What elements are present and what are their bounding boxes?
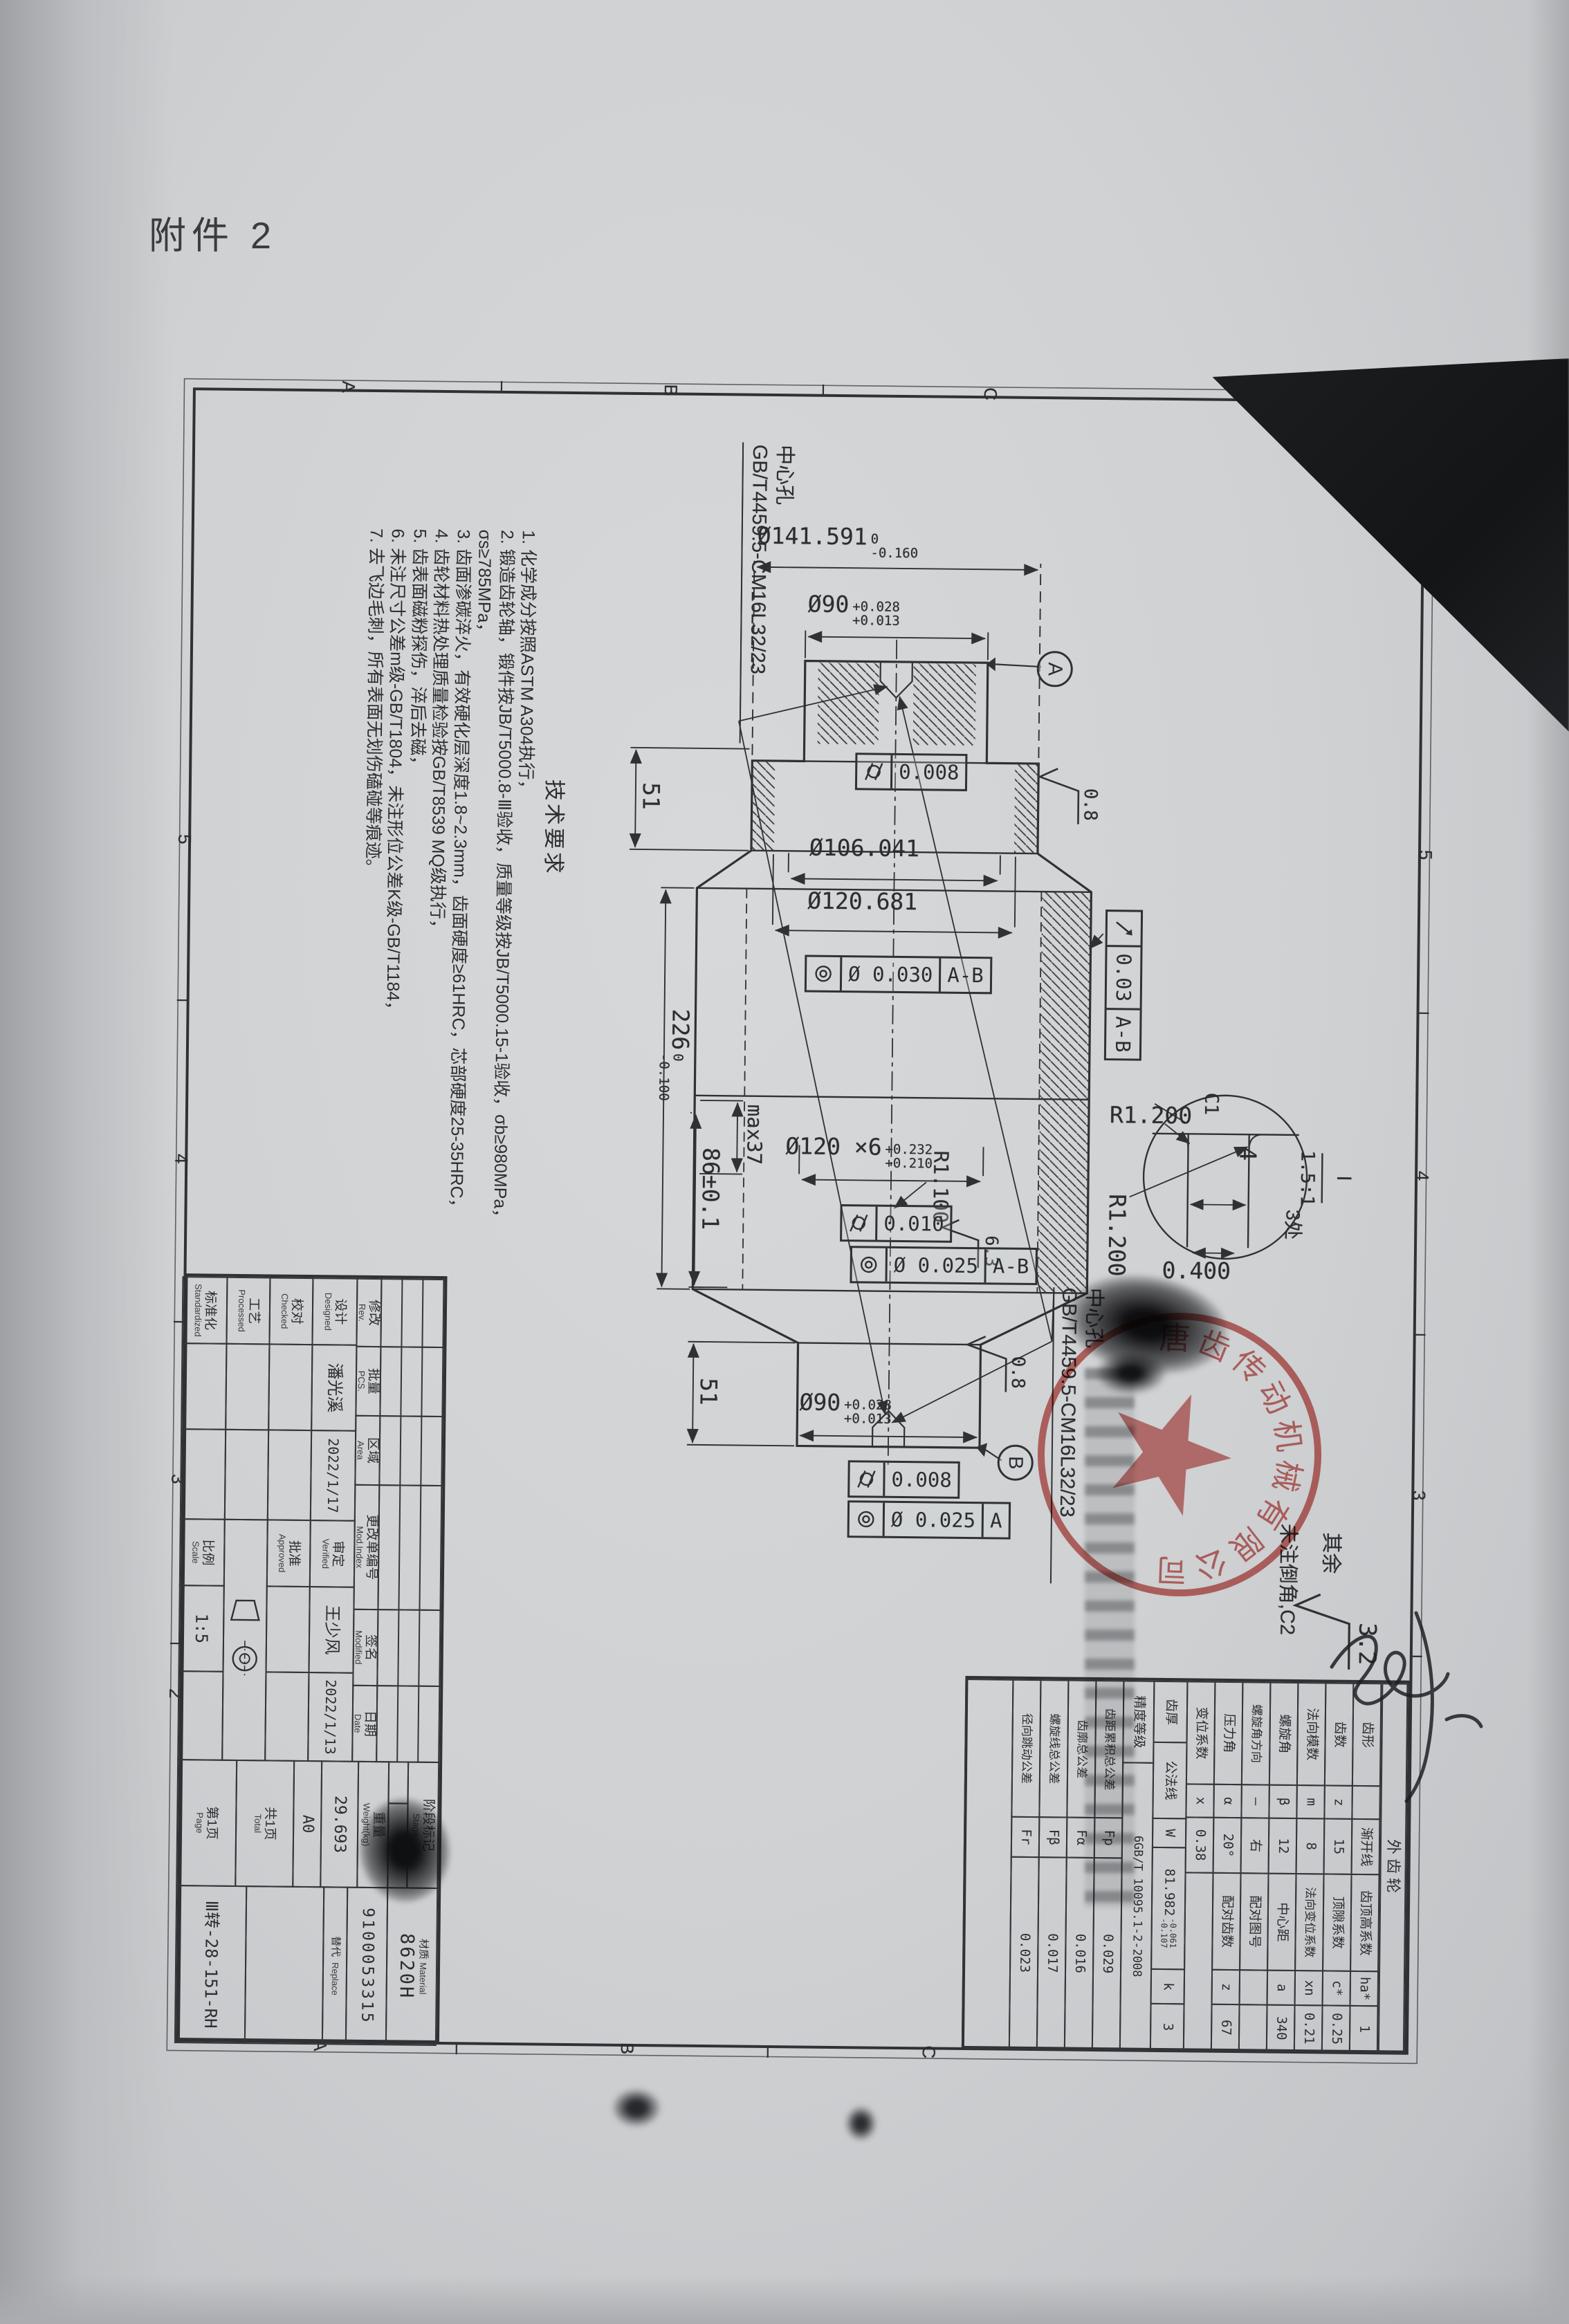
dim-groove: 4	[1234, 1147, 1261, 1161]
dia-sign: Ø	[894, 1253, 906, 1277]
fcf-value: 0.008	[885, 1463, 958, 1497]
gt-cell: xn	[1294, 1970, 1324, 2006]
rev-header: 区域Area	[354, 1415, 380, 1486]
rev-empty	[376, 1609, 441, 1687]
runout-icon	[1108, 912, 1141, 947]
cn: 比例	[200, 1539, 215, 1565]
detail-scale: 1.5:1	[1296, 1150, 1319, 1207]
handwritten-signature	[1311, 1584, 1525, 1812]
dim-radius-1: R1.200	[1110, 1101, 1200, 1129]
en: Modified	[353, 1630, 363, 1664]
gt-cell: 0.21	[1294, 2004, 1323, 2052]
concentricity-icon	[850, 1502, 885, 1536]
cn: 签名	[363, 1634, 378, 1661]
drawing-number: Ⅲ转-28-151-RH	[174, 1885, 247, 2044]
gt-k-value: 3	[1150, 2003, 1185, 2051]
fcf-concentricity-spline: Ø 0.025 A-B	[850, 1246, 1037, 1285]
en: Processed	[236, 1289, 246, 1332]
dim-value: Ø141.591	[758, 522, 868, 551]
staff-name-empty	[265, 1585, 310, 1673]
fcf-concentricity-mid: Ø 0.030 A-B	[805, 954, 992, 994]
fcf-cylindricity-spline: 0.010	[840, 1204, 953, 1243]
tol-lower: -0.160	[870, 546, 918, 560]
toner-mark	[845, 2106, 877, 2141]
title-block: 修改Rev. 批量PCS. 区域Area 更改单编号Mod.Index 签名Mo…	[177, 1273, 448, 2043]
fcf-datum-ref: A-B	[1106, 1010, 1140, 1059]
fcf-value: 0.03	[1107, 947, 1141, 1010]
gt-cell: x	[1185, 1783, 1215, 1818]
center-hole-line2: GB/T4459.5-CM16L32/23	[745, 445, 772, 674]
pages-total: 共1页Total	[235, 1760, 295, 1888]
note-line: 2. 锻造齿轮轴，锻件按JB/T5000.8-Ⅲ验收，质量等级按JB/T5000…	[466, 529, 517, 1284]
en: Page	[194, 1812, 205, 1834]
dim-pin-od: Ø120.681	[807, 887, 980, 916]
fcf-value: 0.010	[877, 1207, 951, 1241]
gt-tol-sym: Fβ	[1038, 1816, 1068, 1858]
tol-upper: -0.061	[1168, 1918, 1177, 1948]
staff-date: 2022/1/13	[307, 1672, 354, 1762]
gt-tol-value: 0.023	[1009, 1856, 1040, 2049]
staff-date-empty	[264, 1671, 309, 1762]
cn: 校对	[288, 1298, 304, 1325]
material-value: 8620H	[395, 1933, 416, 2000]
gt-cell: —	[1240, 1784, 1270, 1818]
staff-label: 审定Verified	[309, 1520, 356, 1588]
en: Rev.	[356, 1304, 367, 1322]
cn: 标准化	[202, 1291, 217, 1330]
gt-cell: 配对图号	[1239, 1872, 1269, 1971]
gt-cell: 法向变位系数	[1294, 1873, 1324, 1971]
first-angle-projection-icon	[227, 1588, 263, 1693]
cn: 审定	[330, 1540, 345, 1567]
scale-label: 比例Scale	[179, 1518, 226, 1587]
rev-header: 签名Modified	[352, 1609, 378, 1686]
gt-cell: 8	[1296, 1818, 1325, 1874]
scale-extra-empty	[177, 1670, 223, 1761]
dim-journal-right: Ø90+0.028+0.013	[799, 1388, 974, 1427]
dim-value: Ø90	[808, 591, 850, 618]
fcf-runout: 0.03 A-B	[1104, 910, 1143, 1061]
gt-cell: 20°	[1213, 1817, 1242, 1874]
weight-value: 29.693	[320, 1760, 359, 1888]
gt-thick-sym: W	[1152, 1818, 1186, 1849]
staff-name-empty	[181, 1343, 227, 1430]
rev-header: 更改单编号Mod.Index	[353, 1484, 380, 1610]
en: Standardized	[192, 1284, 203, 1337]
dim-depth: 0.400	[1162, 1257, 1245, 1284]
replace-cell: 替代Replace	[322, 1886, 348, 2045]
tol-lower: +0.013	[852, 614, 900, 628]
cn: 日期	[363, 1710, 378, 1737]
rev-header: 批量PCS.	[355, 1346, 381, 1417]
paper-edge-left	[0, 0, 173, 2324]
dim-end-length-right: 51	[695, 1378, 722, 1405]
en: Checked	[279, 1293, 289, 1329]
cn: 区域	[365, 1437, 380, 1464]
gt-cell: 变位系数	[1186, 1681, 1216, 1784]
concentricity-icon	[807, 957, 842, 991]
dim-value: Ø120 ×6	[785, 1132, 881, 1160]
gt-cell: β	[1268, 1784, 1298, 1819]
gt-cell: ha*	[1350, 1971, 1379, 2007]
engineering-drawing: A B C A B C 5 4 3 5 4 3 2 技术要求 1. 化学成分按照…	[166, 378, 1435, 2065]
rev-header: 修改Rev.	[356, 1278, 382, 1347]
paper-edge-right	[1527, 0, 1569, 2324]
zone-number: 5	[1415, 850, 1436, 860]
gt-cell: 67	[1211, 2004, 1240, 2051]
dim-flank-max: max37	[742, 1105, 767, 1165]
dim-chamfer-c1: C1	[1200, 1092, 1222, 1115]
rev-header: 日期Date	[351, 1685, 378, 1762]
material-label: 材质 Material	[416, 1939, 428, 1995]
gt-tol-name: 螺旋线总公差	[1038, 1679, 1069, 1818]
cn: 替代	[329, 1936, 341, 1957]
staff-name: 王少风	[308, 1586, 354, 1674]
fcf-datum-ref: A-B	[941, 959, 990, 993]
staff-date-empty	[224, 1429, 269, 1521]
gt-cell	[1238, 2004, 1268, 2051]
zone-number: 4	[1411, 1171, 1433, 1181]
gt-cell: 配对齿数	[1211, 1872, 1241, 1971]
value: 0.030	[872, 963, 933, 987]
value: 0.025	[917, 1253, 978, 1278]
staff-date-empty	[180, 1428, 226, 1520]
gt-k-label: k	[1150, 1968, 1186, 2005]
dim-root-od: Ø106.041	[809, 834, 975, 863]
en: Designed	[322, 1293, 333, 1331]
staff-label: 设计Designed	[311, 1278, 358, 1346]
fcf-value: Ø 0.025	[887, 1248, 987, 1282]
en: Scale	[190, 1541, 200, 1564]
cn: 第1页	[204, 1806, 219, 1840]
dim-journal-left: Ø90+0.028+0.013	[807, 591, 982, 629]
staff-name-empty	[225, 1343, 270, 1431]
en: Total	[253, 1814, 263, 1833]
gt-cell: 压力角	[1213, 1681, 1244, 1785]
fcf-value: Ø 0.030	[842, 957, 942, 991]
dim-value: Ø90	[799, 1388, 841, 1416]
dim-end-length-left: 51	[638, 782, 665, 810]
gt-tol-value: 0.017	[1036, 1856, 1067, 2049]
zone-number: 4	[170, 1154, 192, 1164]
cn: 更改单编号	[364, 1514, 379, 1580]
staff-label: 校对Checked	[268, 1277, 313, 1345]
material-cell: 材质 Material 8620H	[385, 1887, 438, 2046]
zone-letter: C	[918, 2045, 939, 2058]
concentricity-icon	[852, 1248, 887, 1282]
en: Date	[352, 1714, 363, 1733]
gt-thick-label: 齿厚	[1153, 1681, 1189, 1744]
datum-a: A	[1036, 651, 1073, 688]
cylindricity-icon	[857, 755, 892, 788]
gt-cell: 顶隙系数	[1322, 1873, 1352, 1971]
cn: 批准	[286, 1540, 302, 1567]
gt-cell: 1	[1349, 2005, 1379, 2053]
gt-cell: 渐开线	[1351, 1818, 1381, 1875]
paper-edge-bottom	[0, 2276, 1569, 2324]
attachment-label: 附件 2	[149, 205, 277, 259]
gt-cell: 0.25	[1321, 2004, 1351, 2052]
tol-lower: -0.100	[657, 1053, 670, 1101]
en: Verified	[320, 1539, 330, 1569]
zone-number: 3	[1408, 1491, 1429, 1501]
cn: 修改	[367, 1300, 382, 1326]
en: PCS.	[356, 1371, 366, 1392]
dia-sign: Ø	[848, 962, 861, 986]
zone-number: 5	[174, 834, 195, 845]
zone-letter: A	[338, 380, 359, 393]
roughness-0.8: 0.8	[1079, 788, 1100, 821]
rev-empty	[379, 1346, 443, 1417]
gt-cell: 螺旋角	[1269, 1682, 1299, 1786]
gt-thick-value: 81.982 -0.061-0.107	[1150, 1847, 1186, 1971]
detail-id: Ⅰ	[1332, 1154, 1356, 1203]
zone-letter: B	[660, 384, 681, 396]
en: Mod.Index	[354, 1526, 365, 1568]
pages-current: 第1页Page	[176, 1759, 237, 1887]
tol-lower: -0.107	[1159, 1918, 1168, 1948]
value: 0.025	[915, 1508, 976, 1532]
fcf-cylindricity-right: 0.008	[847, 1460, 960, 1499]
gt-cell: 螺旋角方向	[1241, 1681, 1272, 1785]
staff-date-empty	[267, 1429, 312, 1521]
center-hole-line1: 中心孔	[770, 445, 797, 674]
gt-cell: 12	[1268, 1818, 1298, 1874]
rev-empty	[377, 1484, 442, 1611]
zone-letter: C	[980, 387, 1001, 400]
fcf-value: Ø 0.025	[885, 1503, 984, 1537]
value: 81.982	[1161, 1868, 1176, 1916]
dim-tip-od: Ø141.5910-0.160	[757, 522, 1020, 562]
sheet-size: A0	[292, 1760, 322, 1888]
en: Approved	[276, 1534, 286, 1573]
toner-mark	[612, 2089, 661, 2127]
order-code: 9100053315	[345, 1887, 388, 2046]
gt-cell	[1239, 1969, 1269, 2005]
rev-empty	[376, 1685, 440, 1763]
dim-value: 226	[667, 1008, 695, 1050]
cn: 工艺	[246, 1298, 261, 1324]
fcf-datum-ref: A-B	[987, 1249, 1036, 1283]
staff-label: 标准化Standardized	[181, 1276, 228, 1345]
staff-date: 2022/1/17	[310, 1430, 356, 1522]
cn: 材质	[417, 1939, 429, 1959]
gt-thick-name: 公法线	[1152, 1742, 1187, 1820]
rev-empty	[380, 1278, 444, 1348]
en: Replace	[329, 1962, 340, 1995]
fcf-concentricity-right: Ø 0.025 A	[847, 1500, 1011, 1539]
staff-name: 潘光溪	[311, 1344, 357, 1432]
gt-tol-sym: Fr	[1011, 1816, 1040, 1858]
gt-cell: 15	[1323, 1818, 1353, 1874]
en: Material	[417, 1962, 428, 1994]
gt-cell: 右	[1240, 1817, 1270, 1874]
dim-radius-2: R1.200	[1103, 1194, 1131, 1277]
dim-spline: Ø120 ×6+0.232+0.210	[785, 1132, 993, 1172]
zone-letter: B	[616, 2042, 638, 2055]
staff-label: 批准Approved	[266, 1519, 311, 1587]
dim-length: 2260-0.100	[657, 1008, 695, 1101]
center-hole-label-left: 中心孔 GB/T4459.5-CM16L32/23	[745, 445, 797, 675]
gt-cell: 中心距	[1267, 1873, 1296, 1971]
cn: 设计	[332, 1298, 347, 1325]
detail-places: 3处	[1280, 1210, 1307, 1240]
gt-cell: 齿顶高系数	[1350, 1874, 1379, 1972]
cylindricity-icon	[842, 1206, 877, 1240]
dim-spline-length: 86±0.1	[697, 1147, 724, 1230]
red-company-stamp: 唐齿传动机械有限公司	[1024, 1299, 1335, 1610]
projection-symbol-cell	[221, 1519, 268, 1762]
gt-cell: 340	[1266, 2004, 1296, 2052]
gt-bottom-empty	[962, 1679, 1014, 2049]
fcf-cylindricity-left: 0.008	[855, 753, 968, 791]
gt-cell-empty	[1183, 1872, 1214, 2051]
gt-tol-name: 径向跳动公差	[1011, 1679, 1041, 1818]
cn: 共1页	[262, 1807, 277, 1841]
gt-cell: c*	[1322, 1970, 1352, 2006]
staff-label: 工艺Processed	[226, 1277, 270, 1345]
tol-lower: +0.210	[885, 1156, 933, 1170]
tol-lower: +0.013	[844, 1412, 892, 1426]
cylindricity-icon	[850, 1462, 885, 1496]
gt-cell: α	[1213, 1784, 1242, 1818]
dia-sign: Ø	[891, 1508, 903, 1531]
gt-cell: a	[1267, 1970, 1296, 2006]
technical-notes: 技术要求 1. 化学成分按照ASTM A304执行， 2. 锻造齿轮轴，锻件按J…	[357, 528, 568, 1284]
fcf-value: 0.008	[892, 755, 966, 789]
staff-name-empty	[268, 1343, 313, 1431]
tol-upper: 0	[670, 1053, 683, 1101]
stamp-star	[1111, 1390, 1236, 1519]
cn: 批量	[366, 1368, 381, 1394]
part-name-cell-smudged	[244, 1885, 324, 2045]
fcf-datum-ref: A	[984, 1504, 1009, 1537]
rev-empty	[378, 1415, 443, 1486]
gt-cell: 0.38	[1185, 1816, 1215, 1873]
gt-cell: z	[1211, 1969, 1241, 2005]
scale-value: 1:5	[178, 1585, 225, 1672]
en: Area	[355, 1441, 365, 1460]
